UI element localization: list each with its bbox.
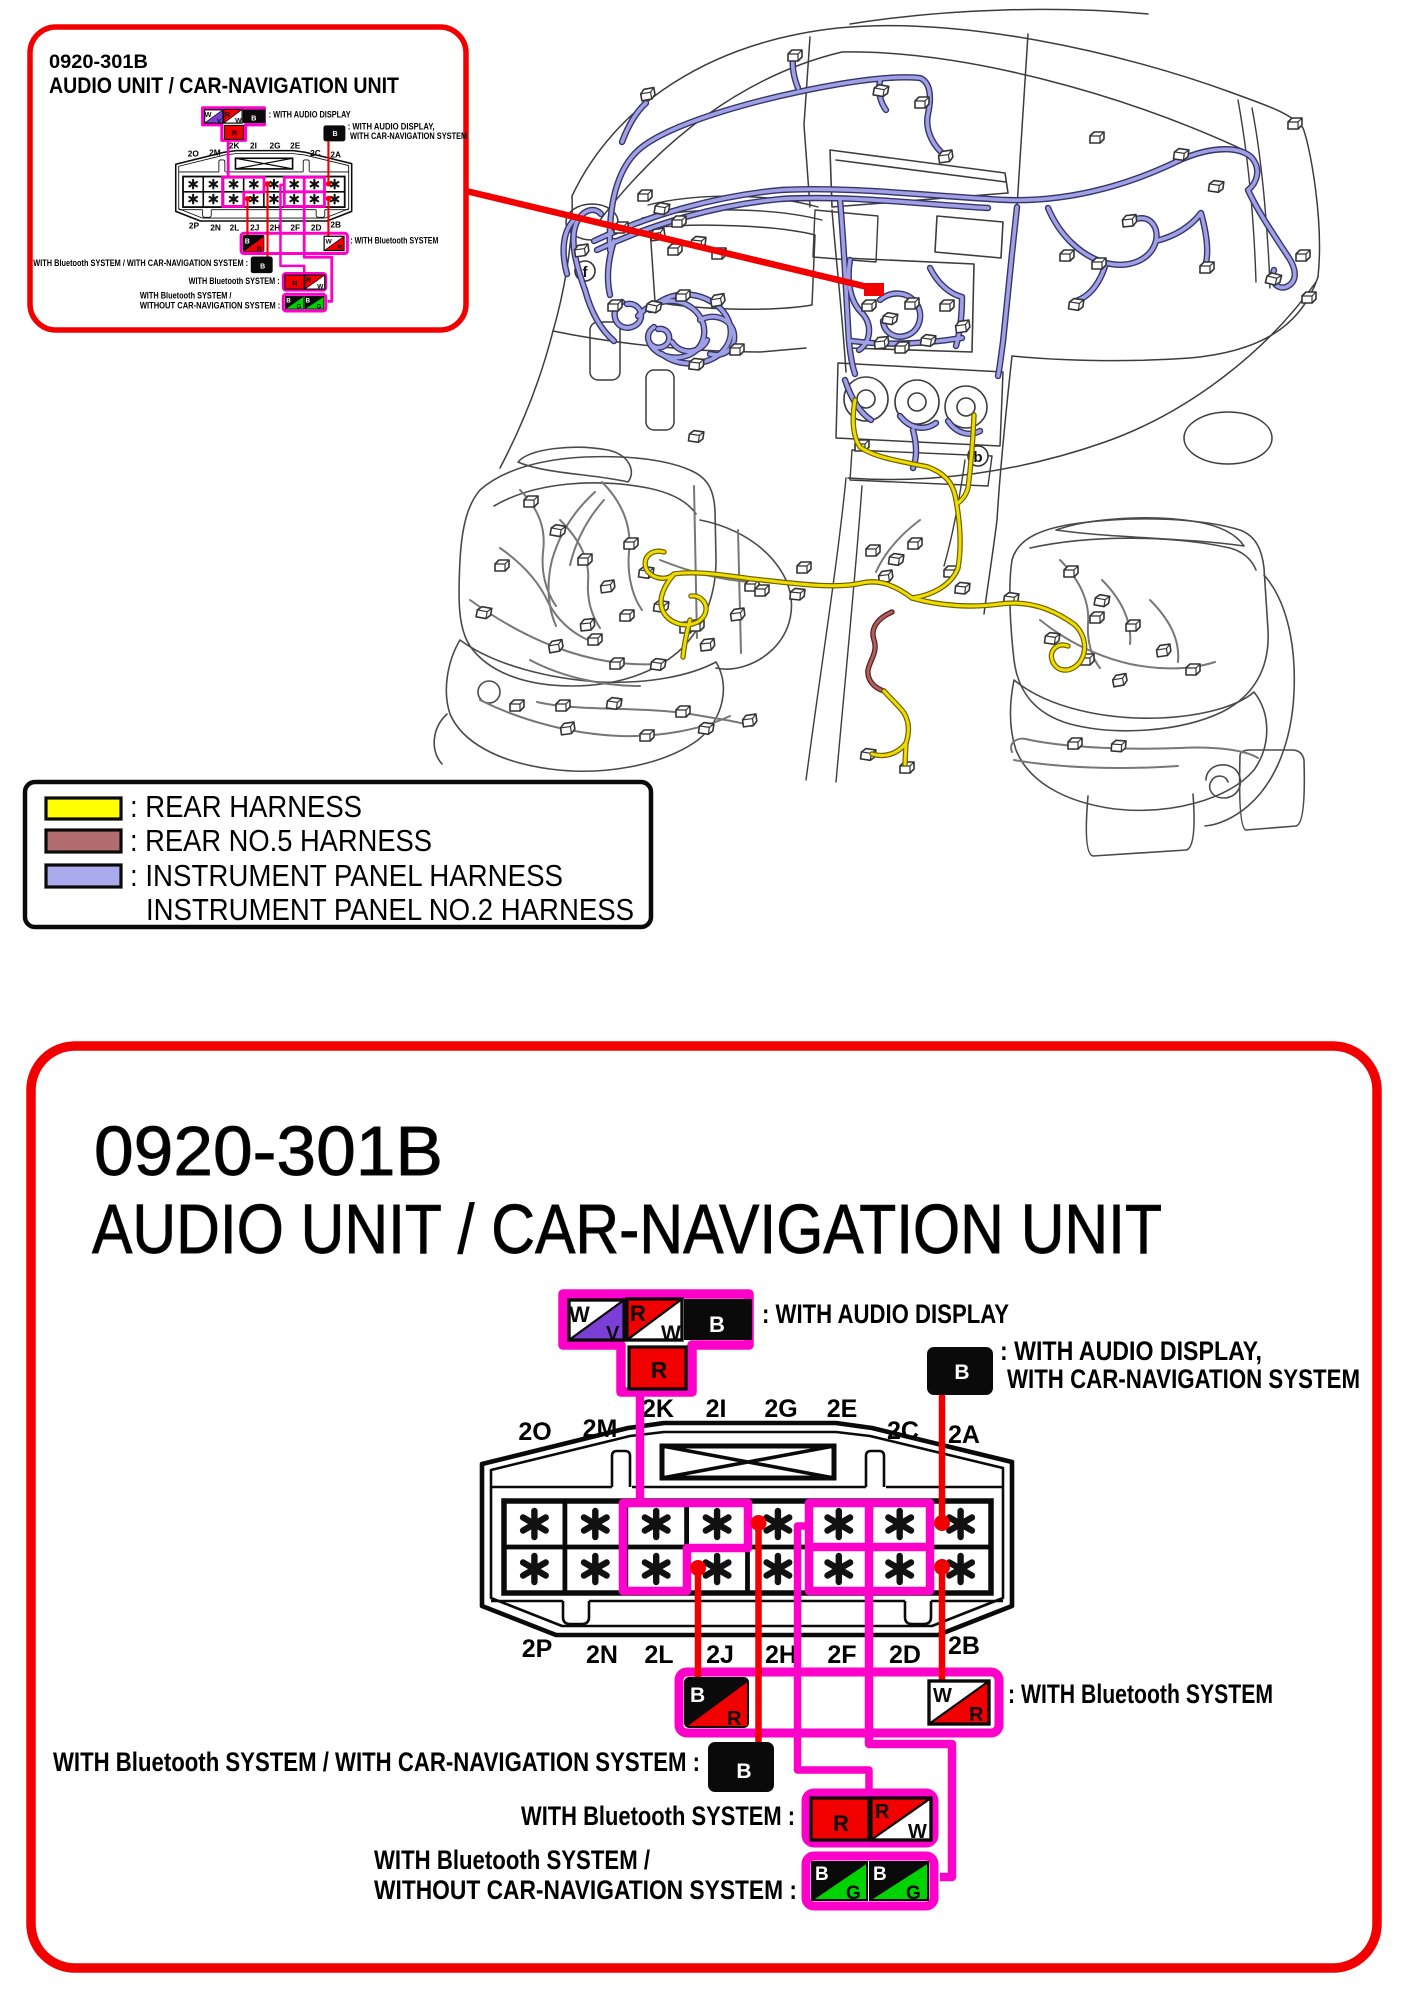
svg-text:: INSTRUMENT PANEL HARNESS: : INSTRUMENT PANEL HARNESS xyxy=(130,858,563,893)
svg-text:: REAR HARNESS: : REAR HARNESS xyxy=(130,789,362,824)
svg-text:: REAR NO.5 HARNESS: : REAR NO.5 HARNESS xyxy=(130,823,432,858)
svg-text:b: b xyxy=(973,449,982,466)
svg-text:INSTRUMENT PANEL NO.2 HARNESS: INSTRUMENT PANEL NO.2 HARNESS xyxy=(146,892,634,927)
svg-text:0920-301B: 0920-301B xyxy=(49,52,148,73)
svg-text:AUDIO UNIT / CAR-NAVIGATION UN: AUDIO UNIT / CAR-NAVIGATION UNIT xyxy=(92,1190,1162,1268)
svg-text:AUDIO UNIT / CAR-NAVIGATION UN: AUDIO UNIT / CAR-NAVIGATION UNIT xyxy=(49,73,399,98)
svg-text:0920-301B: 0920-301B xyxy=(94,1112,443,1190)
